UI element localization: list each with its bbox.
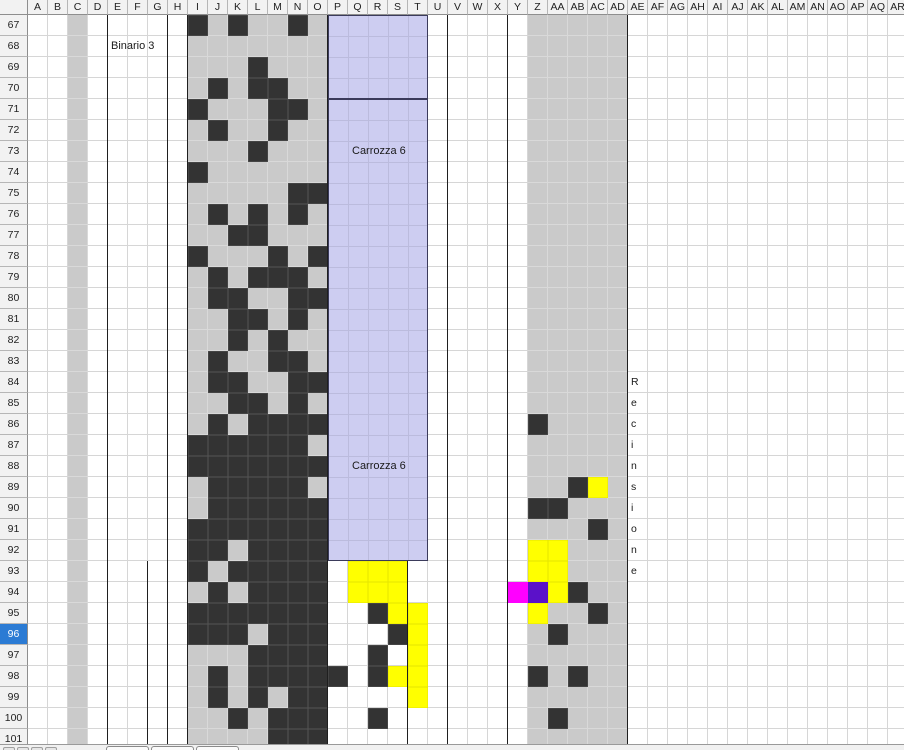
cell-S95[interactable] [388,603,408,624]
column-header-R[interactable]: R [368,0,388,15]
cell-AC89[interactable] [588,477,608,498]
column-header-U[interactable]: U [428,0,448,15]
cell-L77[interactable] [248,225,268,246]
column-header-N[interactable]: N [288,0,308,15]
sheet-tab[interactable] [151,746,194,750]
row-header-97[interactable]: 97 [0,645,28,666]
cell-N84[interactable] [288,372,308,393]
cell-J99[interactable] [208,687,228,708]
cell-J88[interactable] [208,456,228,477]
cell-J95[interactable] [208,603,228,624]
border-line-E [107,15,108,750]
cell-I67[interactable] [188,15,208,36]
column-header-AH[interactable]: AH [688,0,708,15]
cell-Z95[interactable] [528,603,548,624]
cell-K87[interactable] [228,435,248,456]
cell-I71[interactable] [188,99,208,120]
row-header-73[interactable]: 73 [0,141,28,162]
column-header-AL[interactable]: AL [768,0,788,15]
row-header-98[interactable]: 98 [0,666,28,687]
cell-I87[interactable] [188,435,208,456]
column-header-F[interactable]: F [128,0,148,15]
cell-J72[interactable] [208,120,228,141]
vertical-text-letter: e [628,393,648,414]
cell-J91[interactable] [208,519,228,540]
vertical-text-letter: s [628,477,648,498]
cell-M83[interactable] [268,351,288,372]
cell-L92[interactable] [248,540,268,561]
cell-M97[interactable] [268,645,288,666]
cell-P98[interactable] [328,666,348,687]
cell-N96[interactable] [288,624,308,645]
row-header-88[interactable]: 88 [0,456,28,477]
cell-T96[interactable] [408,624,428,645]
sheet-tab-bar[interactable] [0,744,904,750]
cell-O95[interactable] [308,603,328,624]
column-header-A[interactable]: A [28,0,48,15]
column-header-AI[interactable]: AI [708,0,728,15]
cell-I88[interactable] [188,456,208,477]
cell-I93[interactable] [188,561,208,582]
column-header-H[interactable]: H [168,0,188,15]
cell-Z98[interactable] [528,666,548,687]
cell-AA96[interactable] [548,624,568,645]
cell-L86[interactable] [248,414,268,435]
cell-S98[interactable] [388,666,408,687]
cell-L81[interactable] [248,309,268,330]
column-header-J[interactable]: J [208,0,228,15]
cell-J70[interactable] [208,78,228,99]
column-header-Q[interactable]: Q [348,0,368,15]
cell-I92[interactable] [188,540,208,561]
vertical-text-letter: n [628,540,648,561]
cell-O91[interactable] [308,519,328,540]
column-header-I[interactable]: I [188,0,208,15]
cell-L88[interactable] [248,456,268,477]
cell-J83[interactable] [208,351,228,372]
cell-O99[interactable] [308,687,328,708]
cell-I74[interactable] [188,162,208,183]
cell-K100[interactable] [228,708,248,729]
cell-M91[interactable] [268,519,288,540]
spreadsheet: Binario 3 Carrozza 6 Carrozza 6 Recinsio… [0,0,904,750]
sheet-canvas[interactable] [28,15,904,750]
carriage-region[interactable] [328,15,428,561]
cell-M95[interactable] [268,603,288,624]
cell-L99[interactable] [248,687,268,708]
row-header-95[interactable]: 95 [0,603,28,624]
cell-J86[interactable] [208,414,228,435]
vertical-text-letter: c [628,414,648,435]
row-header-71[interactable]: 71 [0,99,28,120]
cell-M79[interactable] [268,267,288,288]
cell-K91[interactable] [228,519,248,540]
column-header-AQ[interactable]: AQ [868,0,888,15]
cell-K88[interactable] [228,456,248,477]
column-header-AN[interactable]: AN [808,0,828,15]
row-header-91[interactable]: 91 [0,519,28,540]
cell-J90[interactable] [208,498,228,519]
select-all-corner[interactable] [0,0,28,15]
cell-M82[interactable] [268,330,288,351]
cell-M78[interactable] [268,246,288,267]
cell-N90[interactable] [288,498,308,519]
column-header-E[interactable]: E [108,0,128,15]
cell-K89[interactable] [228,477,248,498]
row-header-100[interactable]: 100 [0,708,28,729]
column-header-AO[interactable]: AO [828,0,848,15]
cell-R98[interactable] [368,666,388,687]
cell-N85[interactable] [288,393,308,414]
cell-N93[interactable] [288,561,308,582]
row-header-96[interactable]: 96 [0,624,28,645]
cell-O98[interactable] [308,666,328,687]
column-header-V[interactable]: V [448,0,468,15]
cell-N83[interactable] [288,351,308,372]
column-header-AP[interactable]: AP [848,0,868,15]
column-header-AC[interactable]: AC [588,0,608,15]
cell-N79[interactable] [288,267,308,288]
cell-N95[interactable] [288,603,308,624]
vertical-text-letter: n [628,456,648,477]
cell-M72[interactable] [268,120,288,141]
cell-J80[interactable] [208,288,228,309]
column-header-G[interactable]: G [148,0,168,15]
cell-AC95[interactable] [588,603,608,624]
cell-N89[interactable] [288,477,308,498]
cell-K77[interactable] [228,225,248,246]
cell-O100[interactable] [308,708,328,729]
cell-M92[interactable] [268,540,288,561]
cell-Y94[interactable] [508,582,528,603]
column-header-O[interactable]: O [308,0,328,15]
row-header-87[interactable]: 87 [0,435,28,456]
cell-AA90[interactable] [548,498,568,519]
cell-Z86[interactable] [528,414,548,435]
border-line-I [187,15,188,750]
cell-M94[interactable] [268,582,288,603]
column-header-M[interactable]: M [268,0,288,15]
column-header-AE[interactable]: AE [628,0,648,15]
sheet-tab[interactable] [196,746,239,750]
cell-J76[interactable] [208,204,228,225]
cell-L69[interactable] [248,57,268,78]
cell-AA92[interactable] [548,540,568,561]
column-header-AM[interactable]: AM [788,0,808,15]
cell-O88[interactable] [308,456,328,477]
row-header-80[interactable]: 80 [0,288,28,309]
cell-M71[interactable] [268,99,288,120]
row-header-86[interactable]: 86 [0,414,28,435]
border-line-G [147,561,148,750]
cell-N99[interactable] [288,687,308,708]
row-header-67[interactable]: 67 [0,15,28,36]
cell-J92[interactable] [208,540,228,561]
cell-label-binario: Binario 3 [111,36,154,57]
cell-M70[interactable] [268,78,288,99]
column-header-T[interactable]: T [408,0,428,15]
cell-J98[interactable] [208,666,228,687]
cell-T99[interactable] [408,687,428,708]
cell-K80[interactable] [228,288,248,309]
cell-Z92[interactable] [528,540,548,561]
row-header-83[interactable]: 83 [0,351,28,372]
vertical-text-letter: o [628,519,648,540]
cell-K81[interactable] [228,309,248,330]
border-line-H [167,15,168,750]
cell-N67[interactable] [288,15,308,36]
row-header-76[interactable]: 76 [0,204,28,225]
cell-O94[interactable] [308,582,328,603]
cell-AB98[interactable] [568,666,588,687]
cell-O86[interactable] [308,414,328,435]
row-header-74[interactable]: 74 [0,162,28,183]
cell-K95[interactable] [228,603,248,624]
cell-J96[interactable] [208,624,228,645]
row-header-81[interactable]: 81 [0,309,28,330]
cell-Z93[interactable] [528,561,548,582]
cell-I95[interactable] [188,603,208,624]
cell-R94[interactable] [368,582,388,603]
cell-M89[interactable] [268,477,288,498]
cell-O93[interactable] [308,561,328,582]
cell-S93[interactable] [388,561,408,582]
cell-N80[interactable] [288,288,308,309]
row-header-75[interactable]: 75 [0,183,28,204]
cell-M96[interactable] [268,624,288,645]
cell-N97[interactable] [288,645,308,666]
cell-J89[interactable] [208,477,228,498]
cell-AA93[interactable] [548,561,568,582]
cell-O75[interactable] [308,183,328,204]
cell-L90[interactable] [248,498,268,519]
cell-label-carrozza-top: Carrozza 6 [352,141,406,162]
cell-AA100[interactable] [548,708,568,729]
cell-O90[interactable] [308,498,328,519]
column-header-AB[interactable]: AB [568,0,588,15]
cell-Q93[interactable] [348,561,368,582]
cell-K85[interactable] [228,393,248,414]
border-line-Y [507,15,508,750]
sheet-tab[interactable] [106,746,149,750]
cell-I78[interactable] [188,246,208,267]
cell-AC91[interactable] [588,519,608,540]
cell-N88[interactable] [288,456,308,477]
cell-K82[interactable] [228,330,248,351]
cell-T97[interactable] [408,645,428,666]
cell-L95[interactable] [248,603,268,624]
column-header-X[interactable]: X [488,0,508,15]
row-header-84[interactable]: 84 [0,372,28,393]
row-header-93[interactable]: 93 [0,561,28,582]
cell-K67[interactable] [228,15,248,36]
column-header-D[interactable]: D [88,0,108,15]
cell-M87[interactable] [268,435,288,456]
cell-J94[interactable] [208,582,228,603]
cell-L73[interactable] [248,141,268,162]
row-header-90[interactable]: 90 [0,498,28,519]
column-header-K[interactable]: K [228,0,248,15]
cell-O92[interactable] [308,540,328,561]
cell-N94[interactable] [288,582,308,603]
column-header-AR[interactable]: AR [888,0,904,15]
cell-R93[interactable] [368,561,388,582]
cell-M90[interactable] [268,498,288,519]
cell-M86[interactable] [268,414,288,435]
column-header-AJ[interactable]: AJ [728,0,748,15]
row-header-69[interactable]: 69 [0,57,28,78]
column-header-Y[interactable]: Y [508,0,528,15]
cell-L87[interactable] [248,435,268,456]
cell-AB94[interactable] [568,582,588,603]
row-header-79[interactable]: 79 [0,267,28,288]
cell-J87[interactable] [208,435,228,456]
cell-K93[interactable] [228,561,248,582]
column-header-C[interactable]: C [68,0,88,15]
gray-region-C-C [68,15,88,750]
cell-N76[interactable] [288,204,308,225]
cell-L97[interactable] [248,645,268,666]
cell-M93[interactable] [268,561,288,582]
cell-L85[interactable] [248,393,268,414]
column-header-AA[interactable]: AA [548,0,568,15]
cell-I91[interactable] [188,519,208,540]
cell-R100[interactable] [368,708,388,729]
border-line-V [447,15,448,750]
row-header-78[interactable]: 78 [0,246,28,267]
cell-L70[interactable] [248,78,268,99]
cell-T98[interactable] [408,666,428,687]
cell-L89[interactable] [248,477,268,498]
vertical-text-letter: R [628,372,648,393]
column-header-B[interactable]: B [48,0,68,15]
cell-O96[interactable] [308,624,328,645]
row-header-68[interactable]: 68 [0,36,28,57]
column-header-S[interactable]: S [388,0,408,15]
cell-N71[interactable] [288,99,308,120]
cell-L93[interactable] [248,561,268,582]
cell-O84[interactable] [308,372,328,393]
column-header-W[interactable]: W [468,0,488,15]
cell-AB89[interactable] [568,477,588,498]
column-header-L[interactable]: L [248,0,268,15]
row-header-82[interactable]: 82 [0,330,28,351]
cell-O97[interactable] [308,645,328,666]
column-header-AF[interactable]: AF [648,0,668,15]
vertical-text-letter: i [628,435,648,456]
row-header-77[interactable]: 77 [0,225,28,246]
cell-R97[interactable] [368,645,388,666]
cell-L76[interactable] [248,204,268,225]
column-header-P[interactable]: P [328,0,348,15]
cell-J79[interactable] [208,267,228,288]
cell-T95[interactable] [408,603,428,624]
cell-N86[interactable] [288,414,308,435]
column-header-Z[interactable]: Z [528,0,548,15]
vertical-text-letter: e [628,561,648,582]
cell-L94[interactable] [248,582,268,603]
cell-N75[interactable] [288,183,308,204]
cell-AA94[interactable] [548,582,568,603]
cell-O80[interactable] [308,288,328,309]
cell-M98[interactable] [268,666,288,687]
row-header-99[interactable]: 99 [0,687,28,708]
cell-I96[interactable] [188,624,208,645]
row-header-72[interactable]: 72 [0,120,28,141]
cell-N91[interactable] [288,519,308,540]
carriage-divider [328,98,428,100]
border-line-P [327,15,328,750]
cell-K84[interactable] [228,372,248,393]
cell-L98[interactable] [248,666,268,687]
cell-S94[interactable] [388,582,408,603]
vertical-text-letter: i [628,498,648,519]
cell-Z94[interactable] [528,582,548,603]
gray-region-Z-AD [528,15,628,750]
cell-M100[interactable] [268,708,288,729]
cell-M88[interactable] [268,456,288,477]
cell-K96[interactable] [228,624,248,645]
row-header-85[interactable]: 85 [0,393,28,414]
column-header-AD[interactable]: AD [608,0,628,15]
cell-K90[interactable] [228,498,248,519]
cell-J84[interactable] [208,372,228,393]
border-line-T [407,561,408,750]
cell-L91[interactable] [248,519,268,540]
cell-O78[interactable] [308,246,328,267]
row-header-89[interactable]: 89 [0,477,28,498]
cell-N87[interactable] [288,435,308,456]
column-header-AK[interactable]: AK [748,0,768,15]
cell-R95[interactable] [368,603,388,624]
cell-Z90[interactable] [528,498,548,519]
cell-N92[interactable] [288,540,308,561]
cell-N100[interactable] [288,708,308,729]
cell-L79[interactable] [248,267,268,288]
cell-N81[interactable] [288,309,308,330]
row-header-92[interactable]: 92 [0,540,28,561]
row-header-94[interactable]: 94 [0,582,28,603]
cell-N98[interactable] [288,666,308,687]
column-header-AG[interactable]: AG [668,0,688,15]
cell-Q94[interactable] [348,582,368,603]
row-header-70[interactable]: 70 [0,78,28,99]
cell-S96[interactable] [388,624,408,645]
cell-label-carrozza-bottom: Carrozza 6 [352,456,406,477]
